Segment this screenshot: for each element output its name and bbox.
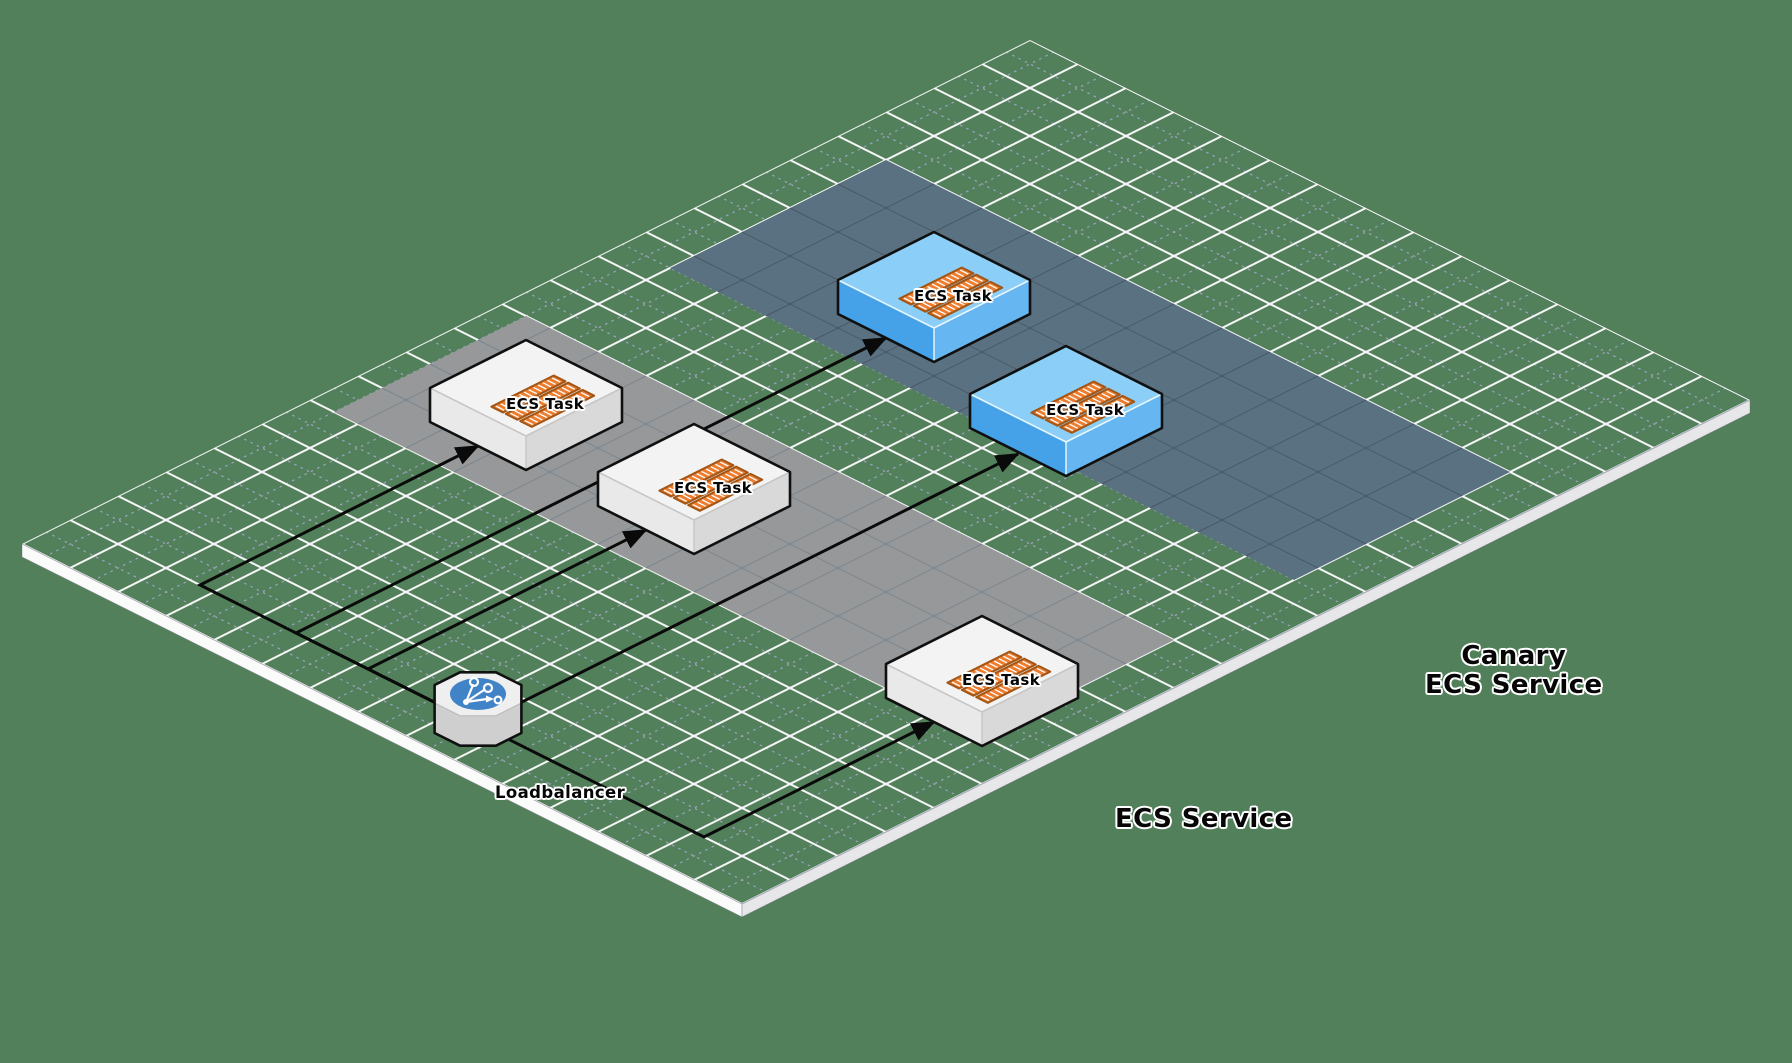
diagram-page: { "canvas": {"width": 1792, "height": 10… (0, 0, 1792, 1063)
node-loadbalancer[interactable] (435, 672, 522, 745)
isometric-diagram-canvas (0, 0, 1792, 1063)
